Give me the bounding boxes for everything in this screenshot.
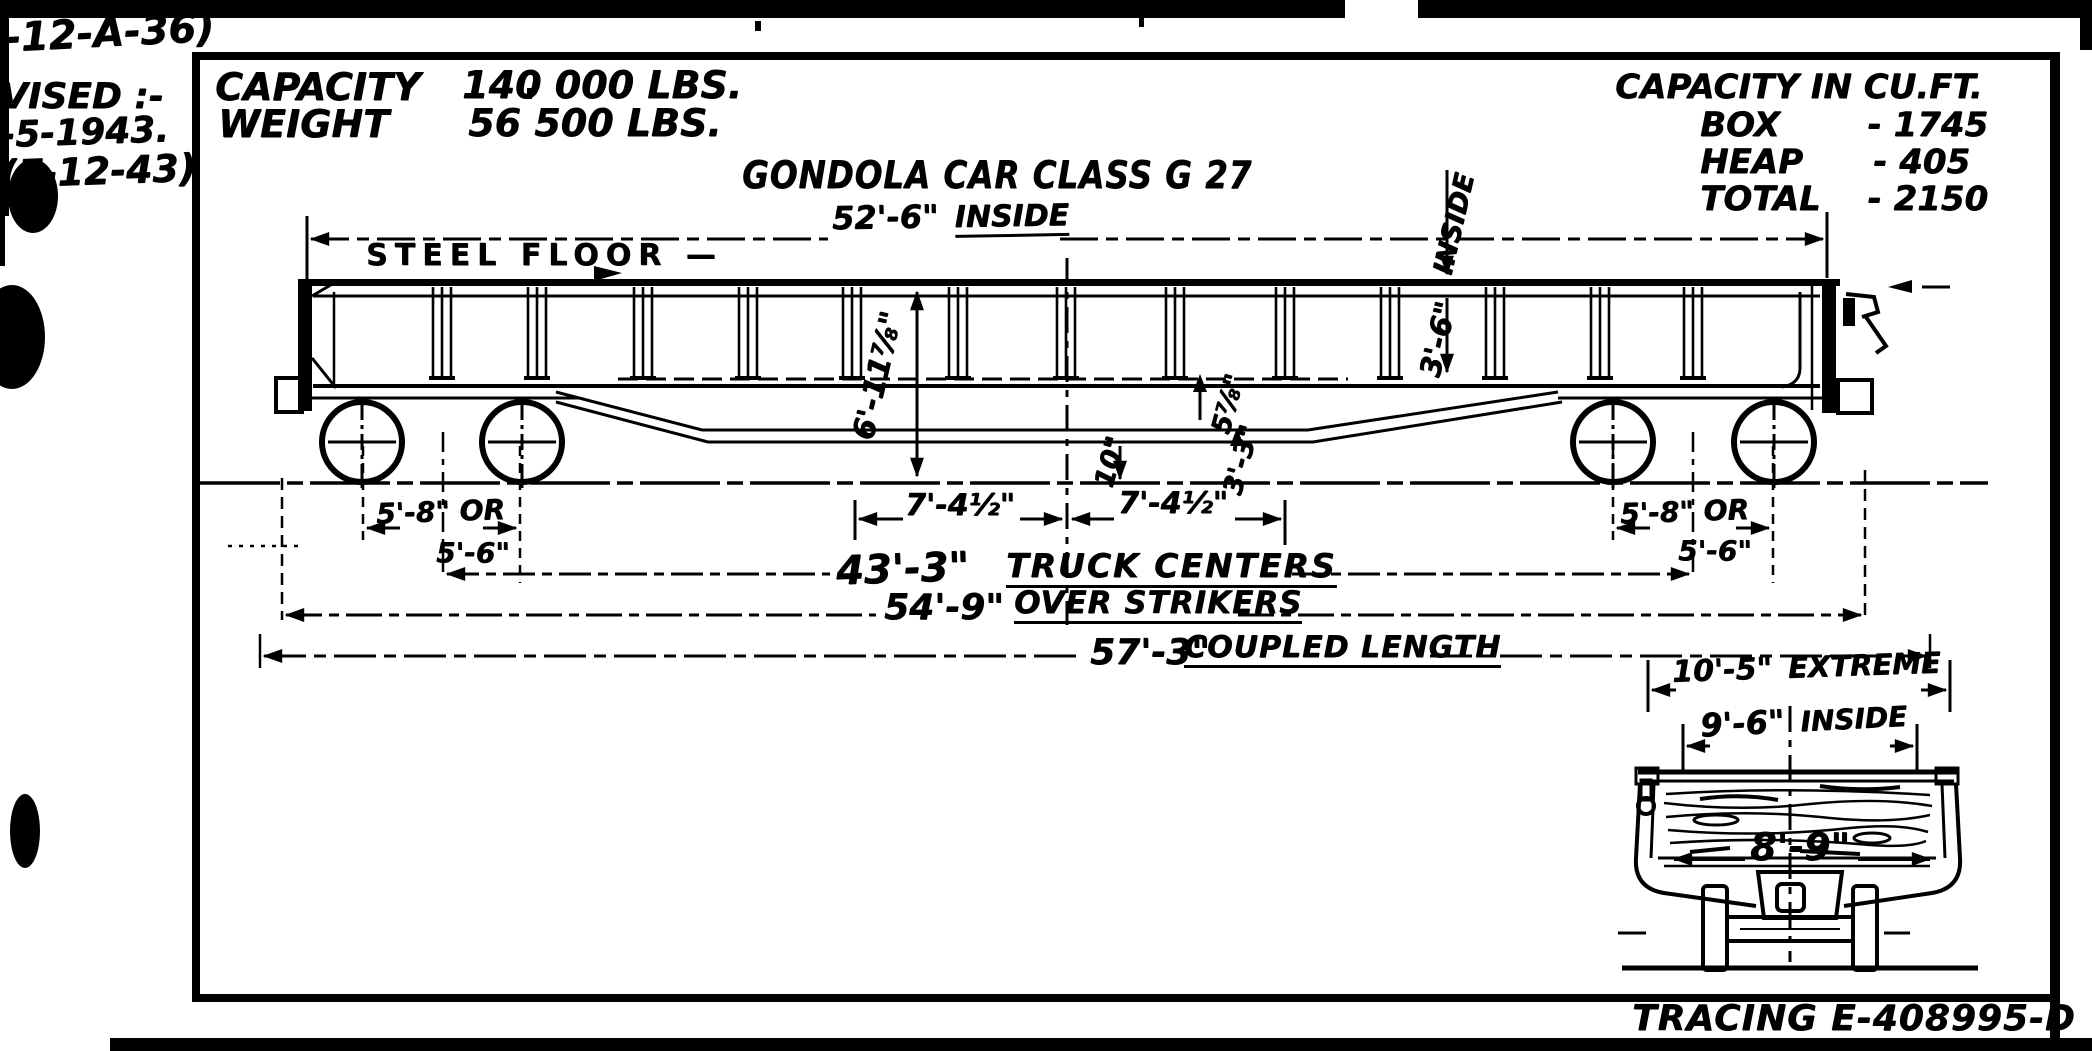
inside-length-word: INSIDE (954, 200, 1069, 237)
cuft-row-total: TOTAL - 2150 (1700, 182, 1988, 218)
end-inside-value: 9'-6" (1699, 705, 1785, 743)
weight-value: 56 500 LBS. (468, 104, 722, 144)
drawing-title: GONDOLA CAR CLASS G 27 (742, 156, 1252, 196)
tracing-number: TRACING E-408995-D (1632, 1000, 2076, 1038)
end-extreme-value: 10'-5" (1672, 653, 1773, 688)
truck-left-dim-a: 5'-8" OR (376, 495, 506, 529)
truck-right-dim-a: 5'-8" OR (1620, 495, 1750, 529)
capacity-value: 140 000 LBS. (462, 66, 742, 106)
margin-note-4: (F-12-43) (0, 149, 197, 196)
end-floor-width-dim: 8'-9" (1750, 828, 1850, 868)
over-strikers-word: OVER STRIKERS (1014, 587, 1302, 624)
cuft-title: CAPACITY IN CU.FT. (1615, 70, 1983, 106)
bolster-dim-right: 7'-4½" (1118, 488, 1228, 520)
truck-left-dim-b: 5'-6" (436, 538, 510, 567)
cuft-row-label: BOX (1700, 108, 1780, 144)
truck-right-dim-b: 5'-6" (1678, 536, 1752, 565)
cuft-row-value: - 405 (1873, 145, 1970, 181)
cuft-row-label: TOTAL (1700, 182, 1821, 218)
inside-length-dim: 52'-6" INSIDE (832, 198, 1070, 240)
steel-floor-label: STEEL FLOOR — (366, 240, 723, 272)
bolster-dim-left: 7'-4½" (905, 490, 1015, 522)
end-inside-word: INSIDE (1800, 702, 1908, 737)
cuft-row-label: HEAP (1700, 145, 1803, 181)
cuft-row-heap: HEAP - 405 (1700, 145, 1970, 181)
cuft-row-box: BOX - 1745 (1700, 108, 1988, 144)
coupled-length-word: COUPLED LENGTH (1184, 632, 1501, 668)
inside-length-value: 52'-6" (832, 200, 939, 235)
truck-centers-word: TRUCK CENTERS (1006, 549, 1337, 588)
over-strikers-value: 54'-9" (884, 589, 1004, 627)
cuft-row-value: - 1745 (1867, 108, 1988, 144)
truck-centers-value: 43'-3" (835, 546, 970, 593)
weight-label: WEIGHT (218, 105, 389, 145)
margin-note-1: -12-A-36) (3, 7, 215, 60)
end-extreme-word: EXTREME (1787, 647, 1941, 683)
cuft-row-value: - 2150 (1867, 182, 1988, 218)
scanned-drawing-page: -12-A-36) VISED :- -5-1943. (F-12-43) CA… (0, 0, 2092, 1051)
